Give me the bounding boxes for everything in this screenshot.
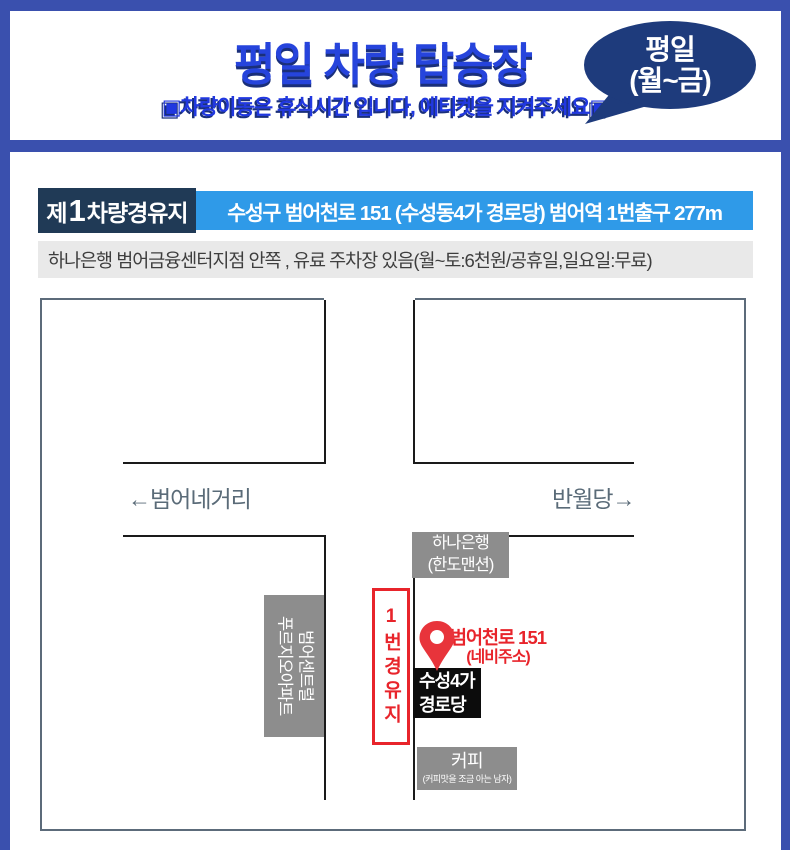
bank-building-box: 하나은행 (한도맨션) <box>412 532 509 578</box>
waypoint-address-bar: 수성구 범어천로 151 (수성동4가 경로당) 범어역 1번출구 277m <box>196 191 753 230</box>
hall-line2: 경로당 <box>419 694 481 718</box>
frame-right-bar <box>781 0 790 850</box>
frame-left-bar <box>0 0 10 850</box>
weekday-speech-bubble: 평일 (월~금) <box>584 21 756 109</box>
bubble-line1: 평일 <box>645 34 695 65</box>
coffee-line1: 커피 <box>417 751 517 773</box>
road-line-vertical-right-top <box>413 300 415 462</box>
waypoint-marker-box: 1번경유지 <box>372 588 410 745</box>
apartment-line1: 범어센트럴 <box>295 616 316 715</box>
header-divider-bar <box>0 140 790 152</box>
frame-top-bar <box>0 0 790 11</box>
apartment-building-box: 범어센트럴 푸르지오아파트 <box>264 595 326 737</box>
bank-line1: 하나은행 <box>412 533 509 555</box>
parking-note-bar: 하나은행 범어금융센터지점 안쪽 , 유료 주차장 있음(월~토:6천원/공휴일… <box>38 241 753 278</box>
road-top-opening <box>324 298 415 301</box>
direction-label-beomeo: ←범어네거리 <box>128 480 251 514</box>
road-line-vertical-left-top <box>324 300 326 462</box>
direction-label-banwoldang: 반월당→ <box>552 480 634 514</box>
apartment-building-label: 범어센트럴 푸르지오아파트 <box>274 616 315 715</box>
road-line-vertical-left-bottom <box>324 535 326 800</box>
bank-line2: (한도맨션) <box>412 555 509 577</box>
location-map: ←범어네거리 반월당→ 범어센트럴 푸르지오아파트 하나은행 (한도맨션) 1번… <box>40 298 746 831</box>
weekday-boarding-notice: 평일 차량 탑승장 ▣차량이동은 휴식시간 입니다, 에티켓을 지켜주세요▣ 평… <box>0 0 790 850</box>
section-label-number: 1 <box>69 193 85 229</box>
road-line-horizontal-top-left <box>123 462 326 464</box>
road-line-horizontal-top-right <box>413 462 634 464</box>
senior-hall-box: 수성4가 경로당 <box>413 668 481 718</box>
coffee-line2: (커피맛을 조금 아는 남자) <box>417 773 517 786</box>
section-label-suffix: 차량경유지 <box>87 194 188 228</box>
apartment-line2: 푸르지오아파트 <box>274 616 295 715</box>
waypoint-section-label: 제1차량경유지 <box>38 188 196 233</box>
hall-line1: 수성4가 <box>419 670 481 694</box>
road-line-horizontal-bottom-left <box>123 535 326 537</box>
location-pin-icon <box>418 620 456 672</box>
bubble-line2: (월~금) <box>629 65 711 96</box>
coffee-shop-box: 커피 (커피맛을 조금 아는 남자) <box>417 747 517 790</box>
section-label-prefix: 제 <box>46 194 66 228</box>
